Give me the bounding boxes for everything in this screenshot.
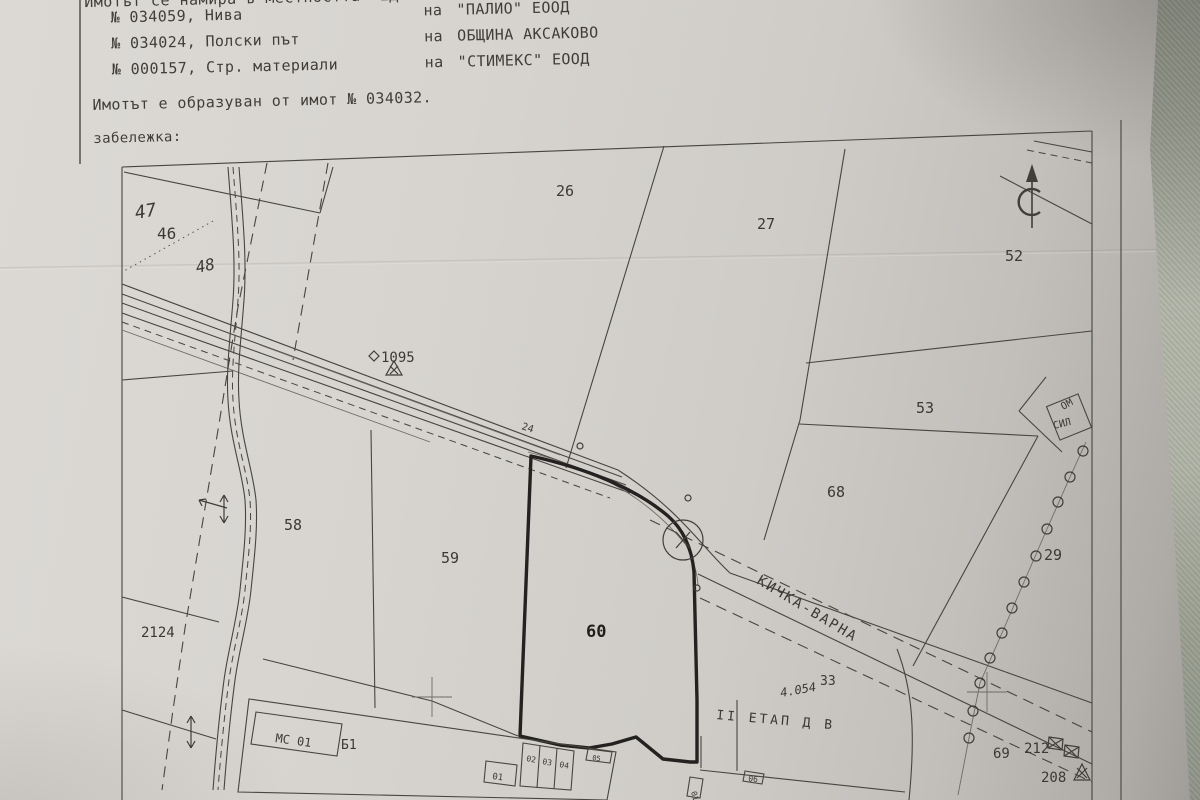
survey-symbols (187, 351, 1090, 780)
map-label-59: 59 (441, 549, 459, 567)
stream-strip (213, 167, 257, 790)
map-label-01: 01 (492, 772, 504, 783)
map-label-24: 24 (520, 421, 535, 435)
north-arrow-icon (1019, 164, 1040, 228)
paper-document: Имотът се намира в местността ЕДИ КЕ № 0… (0, 0, 1200, 800)
map-label-ii-етап-д-в: II ЕТАП Д В (716, 708, 836, 733)
map-label-53: 53 (916, 399, 934, 417)
parcel-60-outline (520, 443, 703, 762)
map-label-68: 68 (827, 483, 845, 501)
map-label-б1: Б1 (341, 738, 357, 753)
map-label-69: 69 (993, 746, 1010, 762)
map-label-212: 212 (1024, 741, 1049, 757)
utility-line (958, 442, 1088, 795)
map-label-01: 01 (689, 790, 700, 800)
map-label-33: 33 (820, 674, 836, 689)
map-label-47: 47 (133, 199, 158, 223)
map-label-1095: 1095 (381, 350, 415, 366)
map-label-48: 48 (194, 254, 217, 277)
building-b1 (238, 699, 616, 800)
map-label-46: 46 (157, 224, 176, 243)
map-label-208: 208 (1041, 770, 1066, 786)
coordinate-cross (412, 677, 452, 717)
map-label-2124: 2124 (141, 625, 175, 641)
road-band-upper (122, 284, 630, 498)
map-label-58: 58 (284, 516, 302, 534)
cadastral-map: 4746482627525368295859602124109524334.05… (0, 0, 1200, 800)
map-label-03: 03 (542, 757, 553, 768)
survey-diamond-1095 (369, 351, 379, 361)
map-label-06: 06 (748, 774, 759, 784)
map-label-4-054: 4.054 (779, 680, 817, 700)
map-label-мс-01: МС 01 (275, 731, 313, 750)
map-label-29: 29 (1044, 546, 1062, 564)
map-label-60: 60 (586, 622, 606, 642)
map-label-27: 27 (757, 215, 775, 233)
map-frame (122, 120, 1121, 800)
map-label-02: 02 (526, 754, 537, 765)
map-label-26: 26 (556, 182, 574, 200)
dashed-boundaries (124, 141, 1092, 790)
map-label-52: 52 (1005, 247, 1023, 265)
utility-point-markers (964, 446, 1088, 743)
map-label-05: 05 (592, 754, 601, 763)
map-label-сил: СИЛ (1052, 417, 1072, 432)
map-label-ом: ОМ (1059, 397, 1075, 412)
buildings (238, 699, 764, 800)
map-label-04: 04 (559, 760, 570, 771)
photo-scene: Имотът се намира в местността ЕДИ КЕ № 0… (0, 0, 1200, 800)
